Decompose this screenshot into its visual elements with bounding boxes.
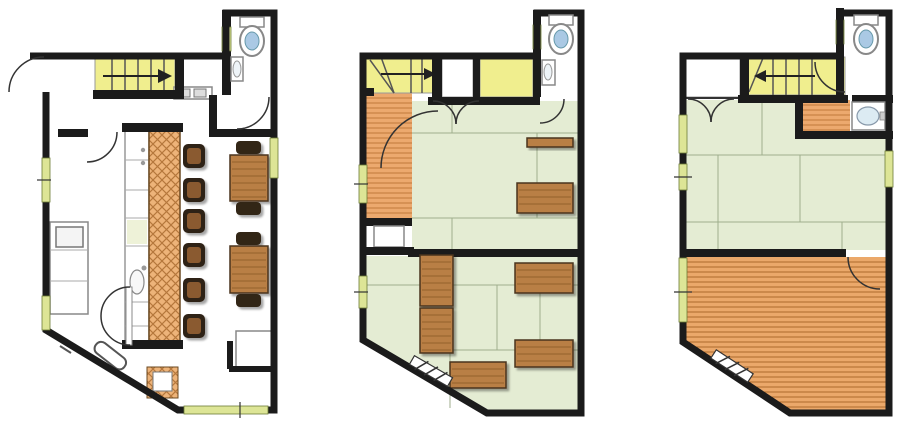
low-table	[515, 263, 573, 293]
toilet-water	[245, 32, 259, 50]
toilet-basin-bowl	[233, 61, 241, 77]
dining-chair	[236, 232, 261, 245]
floor-plan-canvas	[0, 0, 914, 440]
toilet-basin-bowl	[544, 64, 552, 80]
third-floor-plan	[674, 8, 893, 413]
window	[679, 258, 687, 322]
entry-hatch-box-center	[153, 372, 172, 391]
hall-wall	[209, 129, 277, 137]
dining-table	[230, 246, 268, 293]
counter-green-cell	[127, 220, 147, 244]
stove-knob	[141, 148, 145, 152]
washroom	[480, 57, 533, 97]
wall-segment	[795, 100, 803, 136]
low-table-top	[515, 263, 573, 293]
low-table	[450, 362, 506, 388]
kitchen-swing-door-leaf	[126, 287, 132, 345]
window	[42, 296, 50, 330]
counter-end-wall	[122, 123, 183, 132]
washbasin-bowl	[857, 107, 879, 125]
bar-counter	[149, 130, 180, 342]
low-table-top	[450, 362, 506, 388]
wall-segment	[738, 95, 848, 103]
entrance-door-arc	[9, 57, 44, 92]
bar-stool-seat	[187, 182, 201, 198]
wall-below-stairs	[93, 90, 175, 99]
floor-plan-page	[0, 0, 914, 440]
toilet-door-arc	[237, 97, 269, 129]
toilet-water	[554, 30, 568, 48]
closet	[442, 57, 473, 97]
window	[679, 115, 687, 153]
tatami-room-upper	[412, 101, 580, 253]
wall-segment	[58, 129, 88, 137]
wall-segment	[473, 53, 480, 101]
bar-stool-seat	[187, 148, 201, 164]
wall-segment	[740, 53, 749, 97]
bar-stool-seat	[187, 318, 201, 334]
kitchen-appliance	[56, 227, 83, 247]
service-counter	[236, 331, 272, 367]
first-floor-plan	[9, 10, 278, 418]
low-table	[420, 255, 453, 306]
bar-stool-seat	[187, 213, 201, 229]
low-table	[420, 308, 453, 353]
low-table-top	[517, 183, 573, 213]
washbasin-tap	[880, 112, 885, 120]
dining-chair	[236, 294, 261, 307]
room-divider-wall	[683, 249, 846, 257]
shelf-item	[194, 89, 206, 97]
bar-stool-seat	[187, 247, 201, 263]
sink-faucet	[142, 266, 147, 271]
stove-knob	[141, 161, 145, 165]
low-table-top	[420, 255, 453, 306]
alcove-wall	[362, 247, 414, 255]
wall-segment	[795, 131, 893, 139]
window	[270, 138, 278, 178]
alcove-wall	[362, 218, 412, 226]
second-floor-plan	[354, 10, 582, 413]
window	[885, 151, 893, 187]
wall-segment	[175, 53, 184, 99]
low-table	[515, 340, 573, 367]
wall-shelf	[527, 138, 573, 147]
low-table	[517, 183, 573, 213]
kitchen-door-arc	[87, 132, 117, 162]
wall-segment	[432, 53, 442, 101]
window	[184, 406, 268, 414]
alcove	[374, 226, 404, 247]
wall-shelf-top	[527, 138, 573, 147]
dining-chair	[236, 202, 261, 215]
wood-floor-strip	[366, 93, 412, 218]
dining-chair	[236, 141, 261, 154]
toilet-water	[859, 30, 873, 48]
dining-table	[230, 155, 268, 201]
closet	[683, 57, 740, 97]
bar-stool-seat	[187, 282, 201, 298]
